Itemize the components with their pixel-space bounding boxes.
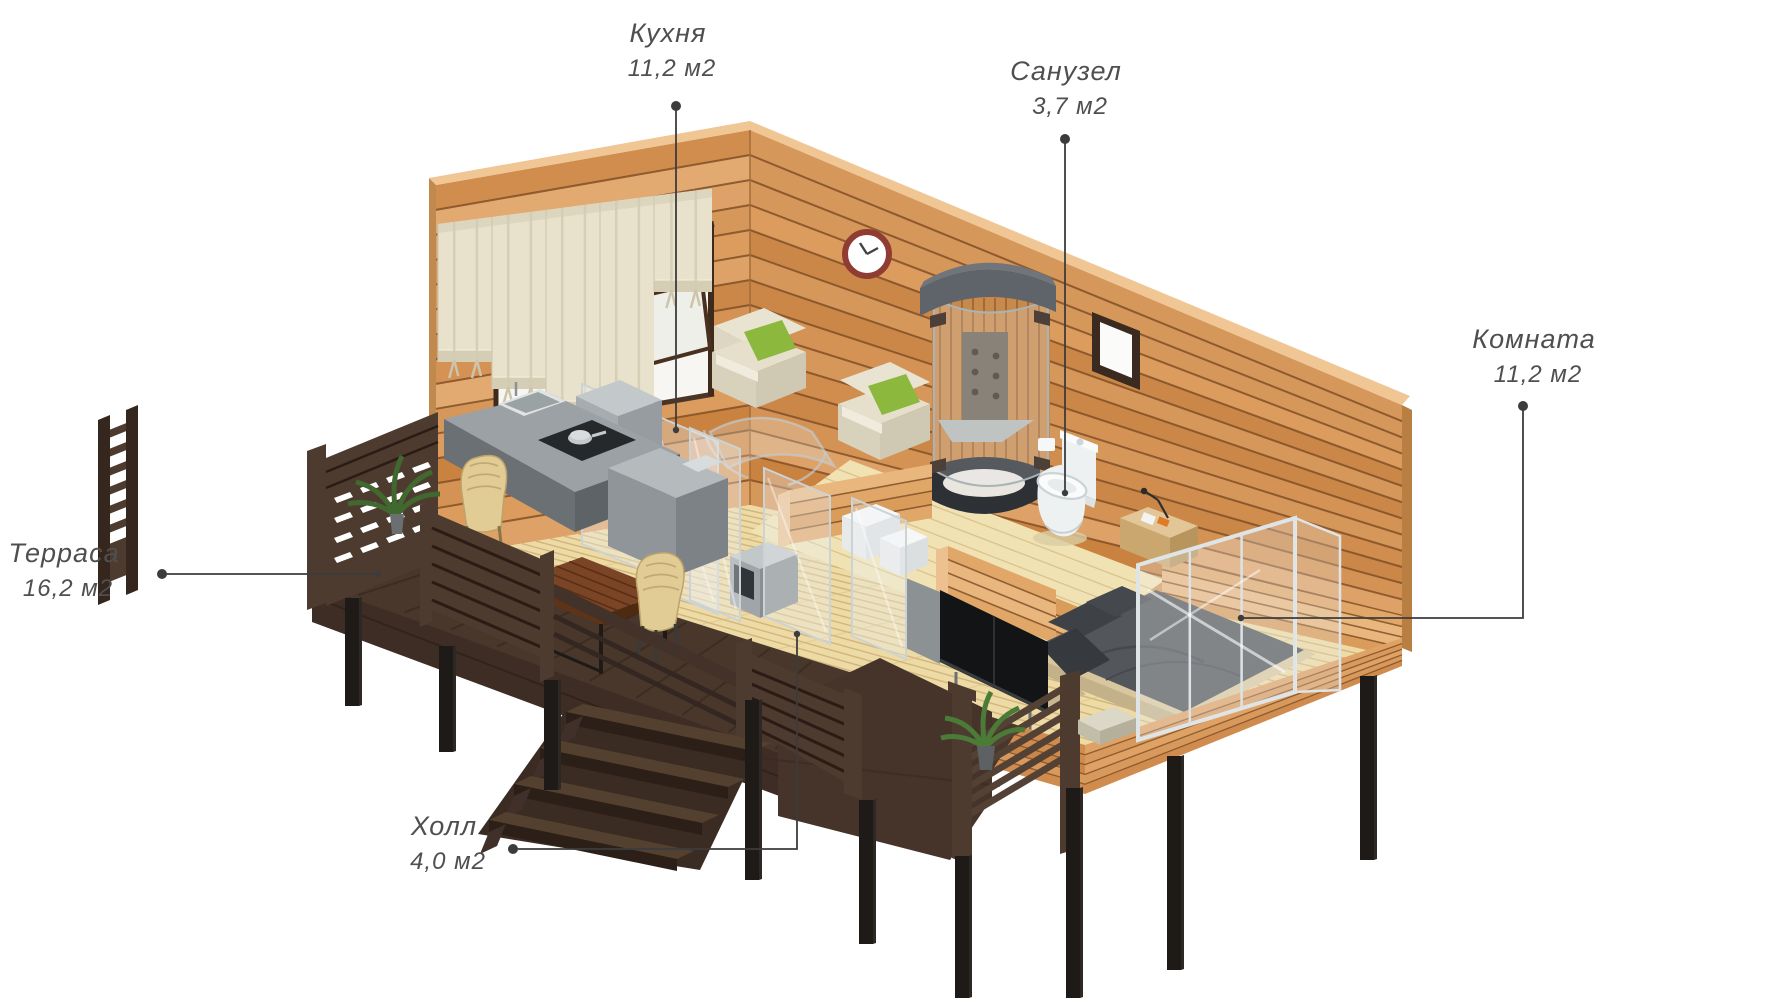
svg-text:11,2 м2: 11,2 м2 (628, 55, 716, 82)
svg-text:Холл: Холл (410, 811, 477, 841)
svg-text:Комната: Комната (1472, 324, 1596, 354)
svg-text:3,7 м2: 3,7 м2 (1032, 93, 1108, 120)
svg-text:16,2 м2: 16,2 м2 (23, 575, 113, 602)
svg-text:Терраса: Терраса (8, 538, 119, 568)
svg-text:11,2 м2: 11,2 м2 (1494, 361, 1582, 388)
svg-text:4,0 м2: 4,0 м2 (410, 848, 486, 875)
svg-text:Санузел: Санузел (1010, 56, 1122, 86)
svg-text:Кухня: Кухня (630, 18, 707, 48)
